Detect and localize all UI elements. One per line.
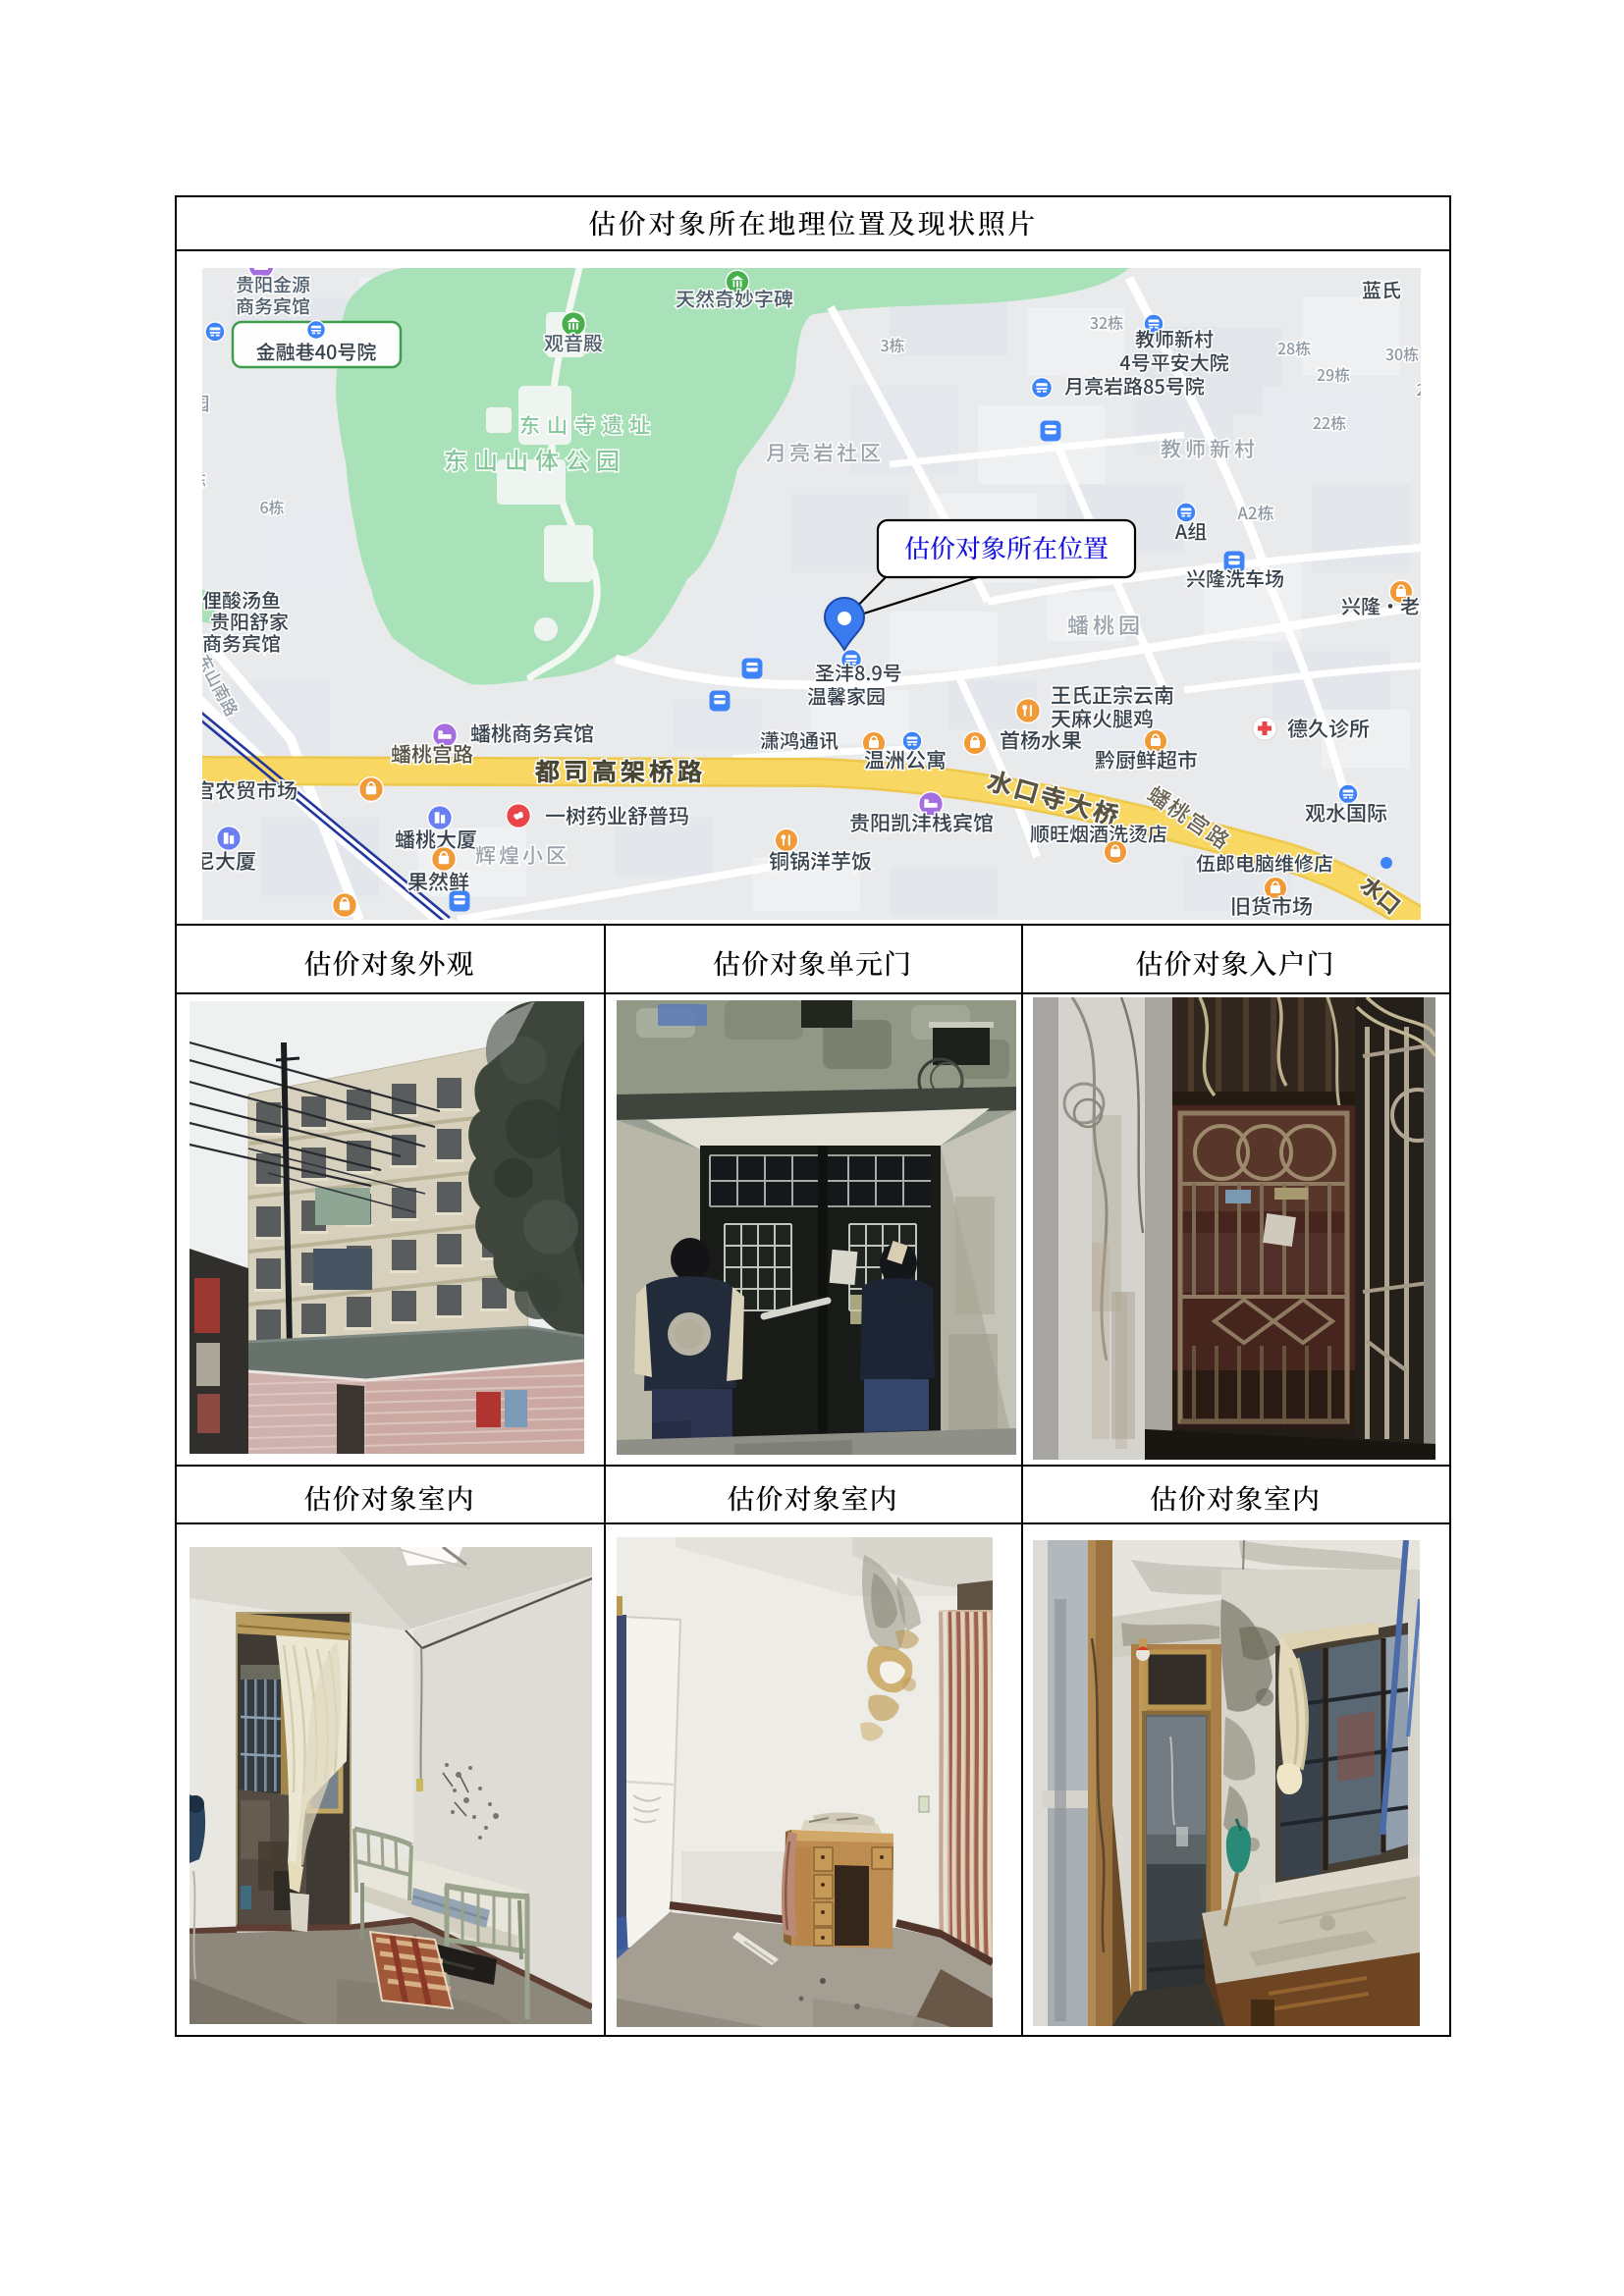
svg-text:兴隆·老: 兴隆·老 [1341,591,1420,619]
svg-text:尼大厦: 尼大厦 [202,846,256,876]
svg-text:A组: A组 [1175,516,1207,545]
svg-text:6栋: 6栋 [259,495,284,518]
svg-text:观音殿: 观音殿 [544,328,603,356]
svg-text:月亮岩社区: 月亮岩社区 [766,438,884,467]
svg-text:潇鸿通讯: 潇鸿通讯 [760,725,839,754]
svg-text:A2栋: A2栋 [1237,500,1273,524]
svg-text:28栋: 28栋 [1277,336,1311,359]
svg-text:教师新村: 教师新村 [1161,434,1259,463]
svg-text:东山山体公园: 东山山体公园 [444,442,626,476]
svg-text:都司高架桥路: 都司高架桥路 [534,753,706,788]
svg-text:黔厨鲜超市: 黔厨鲜超市 [1095,745,1198,774]
svg-text:德久诊所: 德久诊所 [1287,714,1370,743]
svg-text:天然奇妙字碑: 天然奇妙字碑 [676,284,793,312]
svg-text:兴隆洗车场: 兴隆洗车场 [1186,563,1284,592]
svg-text:估价对象所在位置: 估价对象所在位置 [904,529,1109,565]
svg-text:29栋: 29栋 [1317,362,1350,386]
svg-text:蟠桃商务宾馆: 蟠桃商务宾馆 [470,719,594,748]
svg-text:月亮岩路85号院: 月亮岩路85号院 [1064,371,1205,400]
svg-text:顺旺烟酒洗烫店: 顺旺烟酒洗烫店 [1030,819,1167,847]
svg-text:温馨家园: 温馨家园 [807,681,886,710]
svg-text:蟠桃宫路: 蟠桃宫路 [391,739,473,769]
svg-text:商务宾馆: 商务宾馆 [236,293,310,319]
svg-text:30栋: 30栋 [1385,342,1419,365]
svg-text:东山寺遗址: 东山寺遗址 [519,410,657,440]
svg-text:温洲公寓: 温洲公寓 [864,745,947,774]
svg-text:2: 2 [1416,377,1421,400]
svg-text:金融巷40号院: 金融巷40号院 [256,337,377,365]
svg-text:观水国际: 观水国际 [1305,798,1387,828]
svg-text:旧货市场: 旧货市场 [1230,891,1313,920]
svg-text:伍郎电脑维修店: 伍郎电脑维修店 [1196,848,1333,877]
svg-text:32栋: 32栋 [1090,310,1123,334]
svg-text:贵阳凯沣栈宾馆: 贵阳凯沣栈宾馆 [849,808,994,837]
svg-text:蟠桃宫农贸市场: 蟠桃宫农贸市场 [202,775,298,805]
svg-text:22栋: 22栋 [1313,410,1346,434]
svg-text:蟠桃园: 蟠桃园 [1067,609,1144,640]
svg-text:一树药业舒普玛: 一树药业舒普玛 [545,801,689,830]
svg-text:栋: 栋 [202,467,206,491]
svg-text:园: 园 [202,390,210,416]
svg-text:首杨水果: 首杨水果 [1000,725,1082,755]
svg-text:铜锅洋芋饭: 铜锅洋芋饭 [769,846,872,876]
svg-text:辉煌小区: 辉煌小区 [475,840,569,870]
svg-text:3栋: 3栋 [880,333,904,356]
svg-text:蓝氏: 蓝氏 [1362,275,1401,303]
